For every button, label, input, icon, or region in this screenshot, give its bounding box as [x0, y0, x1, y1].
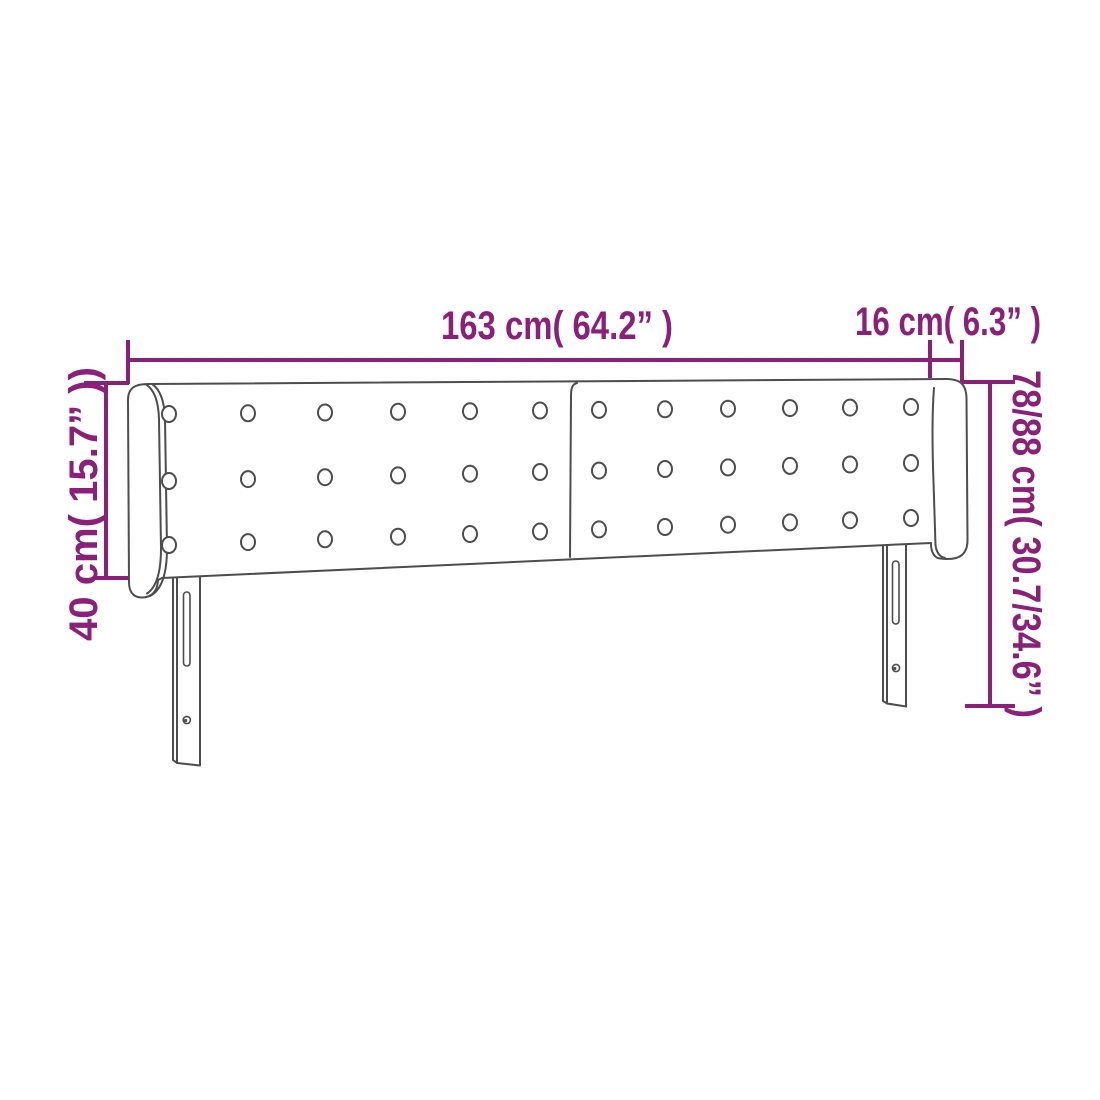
tuft-button: [162, 406, 176, 422]
tuft-button: [241, 471, 255, 487]
tuft-button: [318, 405, 332, 421]
tuft-button: [904, 455, 918, 471]
tuft-button: [241, 534, 255, 550]
tuft-button: [721, 401, 735, 417]
tuft-button: [463, 526, 477, 542]
tuft-button: [904, 399, 918, 415]
tuft-button: [162, 473, 176, 489]
right-leg-slot: [893, 561, 900, 624]
tuft-button: [318, 531, 332, 547]
tuft-button: [658, 519, 672, 535]
right-mounting-leg: [883, 542, 906, 707]
tuft-button: [592, 463, 606, 479]
tuft-button: [843, 512, 857, 528]
tuft-button: [533, 403, 547, 419]
tuft-button: [463, 466, 477, 482]
headboard-drawing: [128, 379, 968, 766]
tuft-button: [391, 467, 405, 483]
tuft-button: [843, 457, 857, 473]
dimension-main-width: 163 cm( 64.2” ): [128, 304, 930, 382]
dim-163-label: 163 cm( 64.2” ): [441, 304, 673, 348]
tuft-button: [533, 464, 547, 480]
dimension-panel-height: 40 cm( 15.7” )): [62, 367, 127, 641]
tuft-button: [592, 521, 606, 537]
tuft-button: [241, 405, 255, 421]
tuft-button: [391, 404, 405, 420]
diagram-canvas: 163 cm( 64.2” ) 16 cm( 6.3” ) 40 cm( 15.…: [0, 0, 1100, 1100]
tuft-button: [318, 469, 332, 485]
tuft-button: [783, 458, 797, 474]
tuft-button: [721, 459, 735, 475]
dimension-total-height: 78/88 cm( 30.7/34.6” ): [964, 370, 1048, 718]
tuft-button: [658, 461, 672, 477]
tuft-button: [783, 400, 797, 416]
dim-16-label: 16 cm( 6.3” ): [855, 300, 1041, 344]
dim-40-label: 40 cm( 15.7” )): [62, 367, 106, 641]
tuft-button: [463, 403, 477, 419]
tuft-button: [162, 537, 176, 553]
dimension-side-wing-width: 16 cm( 6.3” ): [855, 300, 1041, 380]
tuft-button: [843, 400, 857, 416]
tuft-button: [658, 401, 672, 417]
left-leg-slot: [184, 592, 191, 666]
right-leg-hole-dot: [893, 667, 896, 670]
tuft-button: [391, 529, 405, 545]
left-mounting-leg: [173, 575, 200, 766]
dim-78-label: 78/88 cm( 30.7/34.6” ): [1004, 370, 1048, 718]
tuft-button: [592, 402, 606, 418]
tuft-button: [783, 514, 797, 530]
left-leg-hole-dot: [184, 719, 187, 722]
headboard-dimension-diagram: 163 cm( 64.2” ) 16 cm( 6.3” ) 40 cm( 15.…: [0, 0, 1100, 1100]
tuft-button: [721, 517, 735, 533]
tuft-button: [533, 524, 547, 540]
tuft-button: [904, 510, 918, 526]
